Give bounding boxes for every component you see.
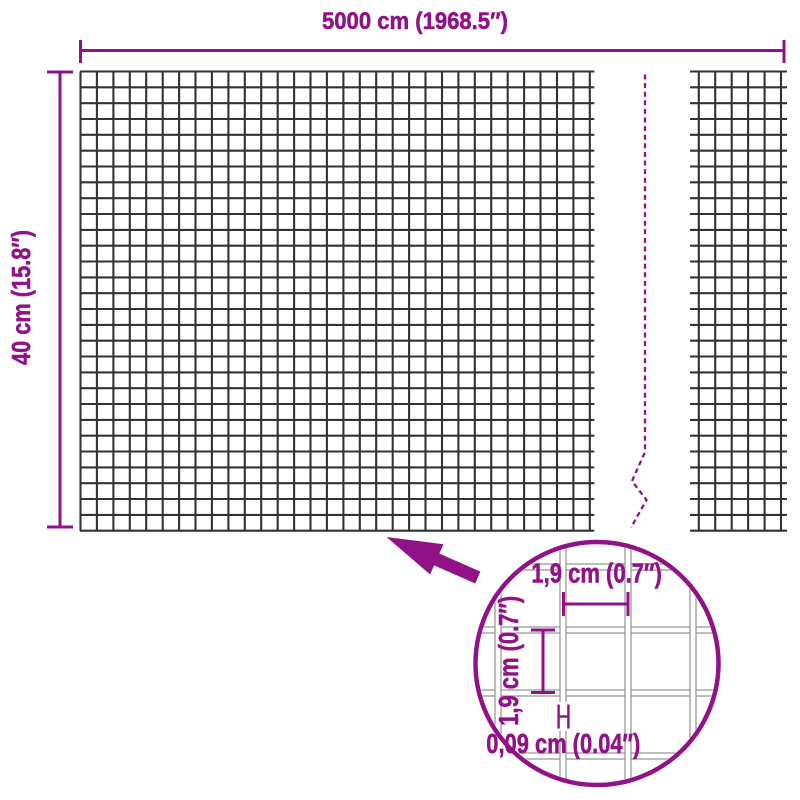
svg-text:0,09 cm (0.04″): 0,09 cm (0.04″) bbox=[486, 728, 640, 759]
svg-text:5000 cm (1968.5″): 5000 cm (1968.5″) bbox=[322, 8, 508, 35]
svg-text:40 cm (15.8″): 40 cm (15.8″) bbox=[6, 230, 36, 365]
svg-text:1,9 cm (0.7″): 1,9 cm (0.7″) bbox=[493, 596, 524, 726]
svg-text:1,9 cm (0.7″): 1,9 cm (0.7″) bbox=[531, 558, 662, 589]
